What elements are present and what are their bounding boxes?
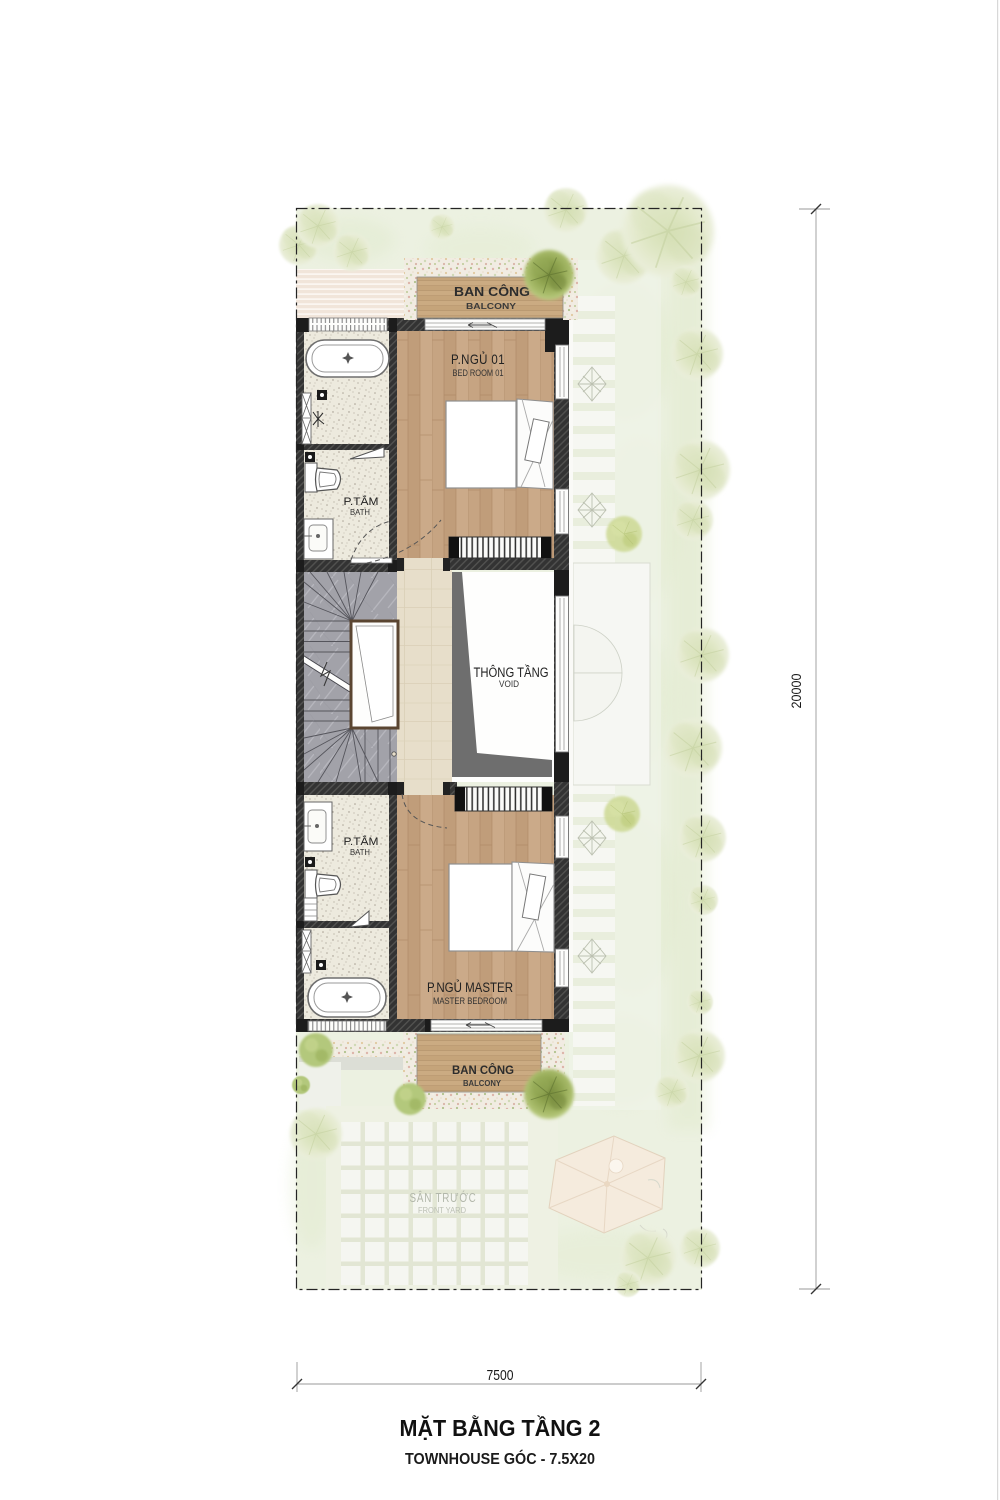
svg-text:MASTER BEDROOM: MASTER BEDROOM	[433, 996, 507, 1007]
svg-text:20000: 20000	[789, 674, 804, 709]
svg-text:TOWNHOUSE GÓC - 7.5X20: TOWNHOUSE GÓC - 7.5X20	[405, 1449, 595, 1468]
svg-text:P.TẮM: P.TẮM	[344, 835, 379, 848]
svg-text:BALCONY: BALCONY	[463, 1079, 502, 1088]
svg-text:P.TẮM: P.TẮM	[344, 495, 379, 508]
svg-text:P.NGỦ MASTER: P.NGỦ MASTER	[427, 980, 513, 995]
svg-text:BATH: BATH	[350, 508, 370, 517]
svg-text:BATH: BATH	[350, 848, 370, 857]
svg-text:BAN CÔNG: BAN CÔNG	[454, 284, 530, 299]
svg-text:VOID: VOID	[499, 679, 519, 690]
svg-text:P.NGỦ 01: P.NGỦ 01	[451, 350, 505, 367]
svg-text:SÂN TRƯỚC: SÂN TRƯỚC	[410, 1190, 477, 1205]
svg-text:BED ROOM 01: BED ROOM 01	[453, 368, 504, 379]
svg-text:THÔNG TẦNG: THÔNG TẦNG	[474, 665, 549, 680]
svg-text:BALCONY: BALCONY	[466, 301, 516, 311]
svg-text:MẶT BẰNG TẦNG 2: MẶT BẰNG TẦNG 2	[400, 1414, 601, 1441]
svg-text:FRONT YARD: FRONT YARD	[418, 1205, 466, 1215]
svg-text:7500: 7500	[487, 1367, 514, 1384]
svg-text:BAN CÔNG: BAN CÔNG	[452, 1064, 514, 1077]
